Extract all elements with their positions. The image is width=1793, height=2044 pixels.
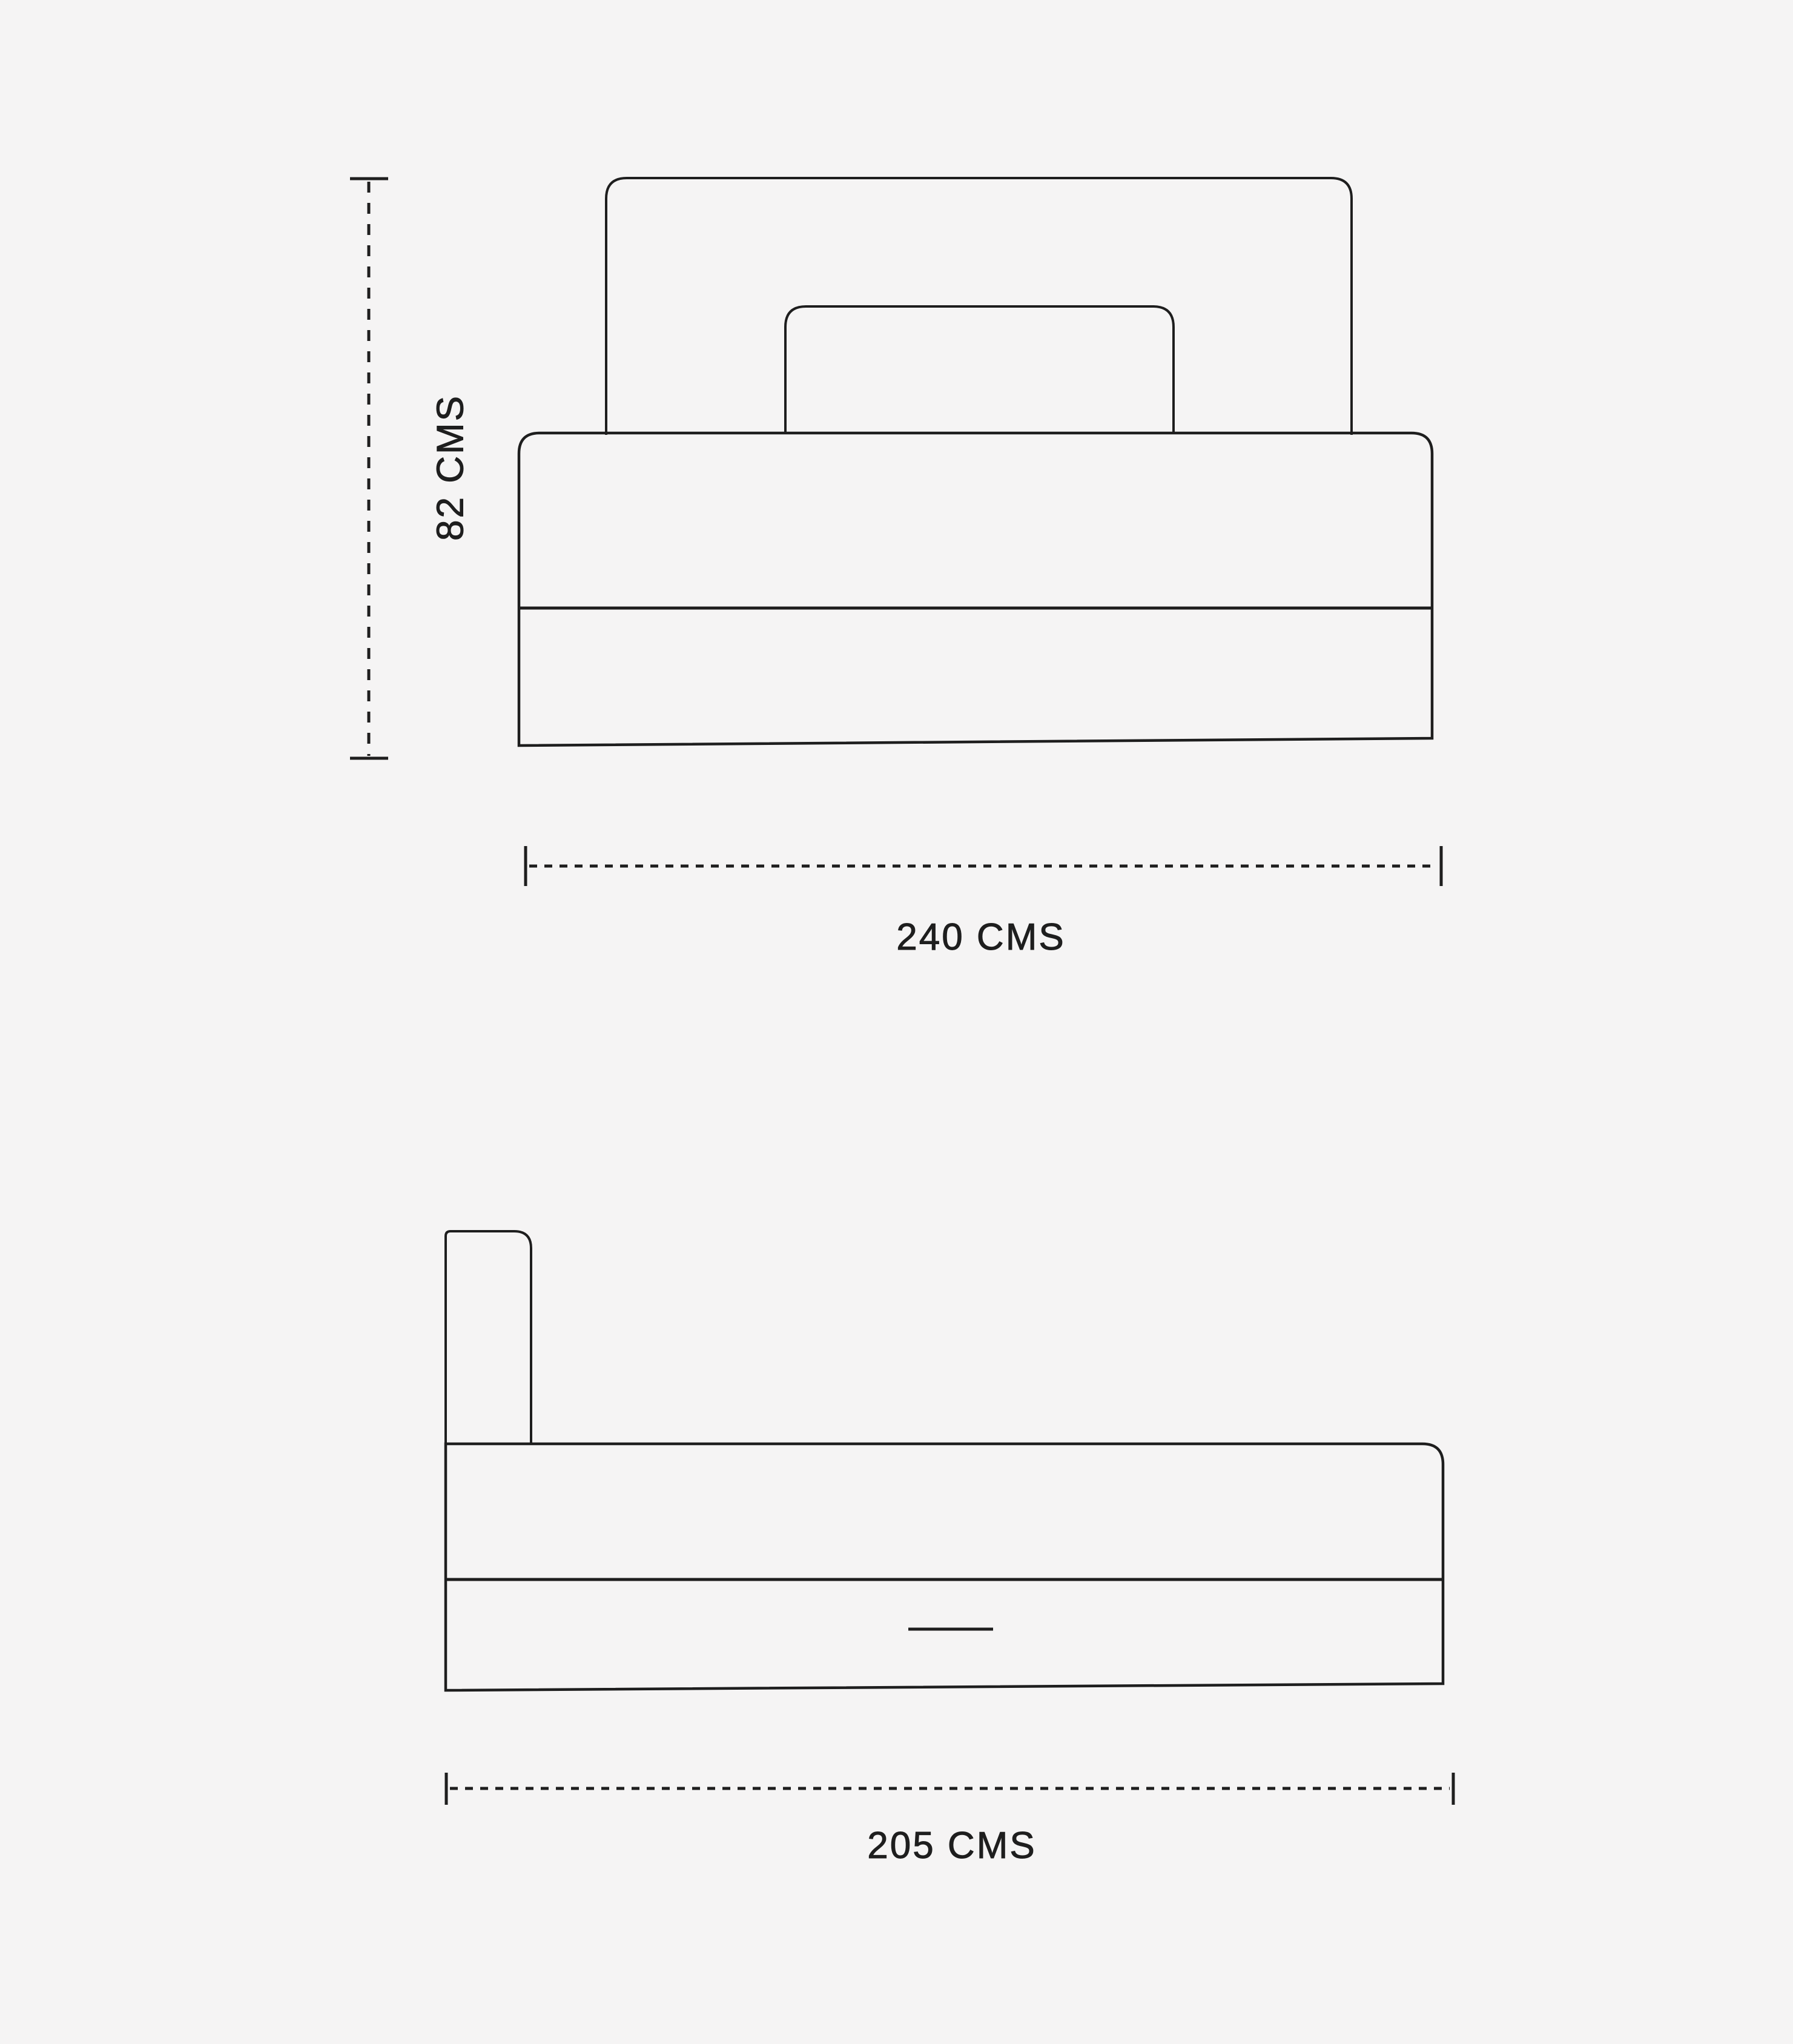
mattress-base-outline (519, 433, 1432, 746)
height-dimension (350, 179, 388, 758)
width-dimension (526, 846, 1441, 886)
front-view: 82 CMS 240 CMS (350, 178, 1441, 958)
height-dimension-label: 82 CMS (429, 394, 471, 541)
bed-body-outline (446, 1444, 1443, 1690)
headboard-post-outline (446, 1231, 531, 1444)
depth-dimension-label: 205 CMS (867, 1825, 1036, 1867)
width-dimension-label: 240 CMS (896, 916, 1065, 958)
pillow-outline (785, 306, 1174, 434)
bed-dimension-drawing: 82 CMS 240 CMS (0, 0, 1793, 2044)
depth-dimension (446, 1773, 1453, 1805)
side-view: 205 CMS (446, 1231, 1453, 1867)
dimension-diagram-page: 82 CMS 240 CMS (0, 0, 1793, 2044)
